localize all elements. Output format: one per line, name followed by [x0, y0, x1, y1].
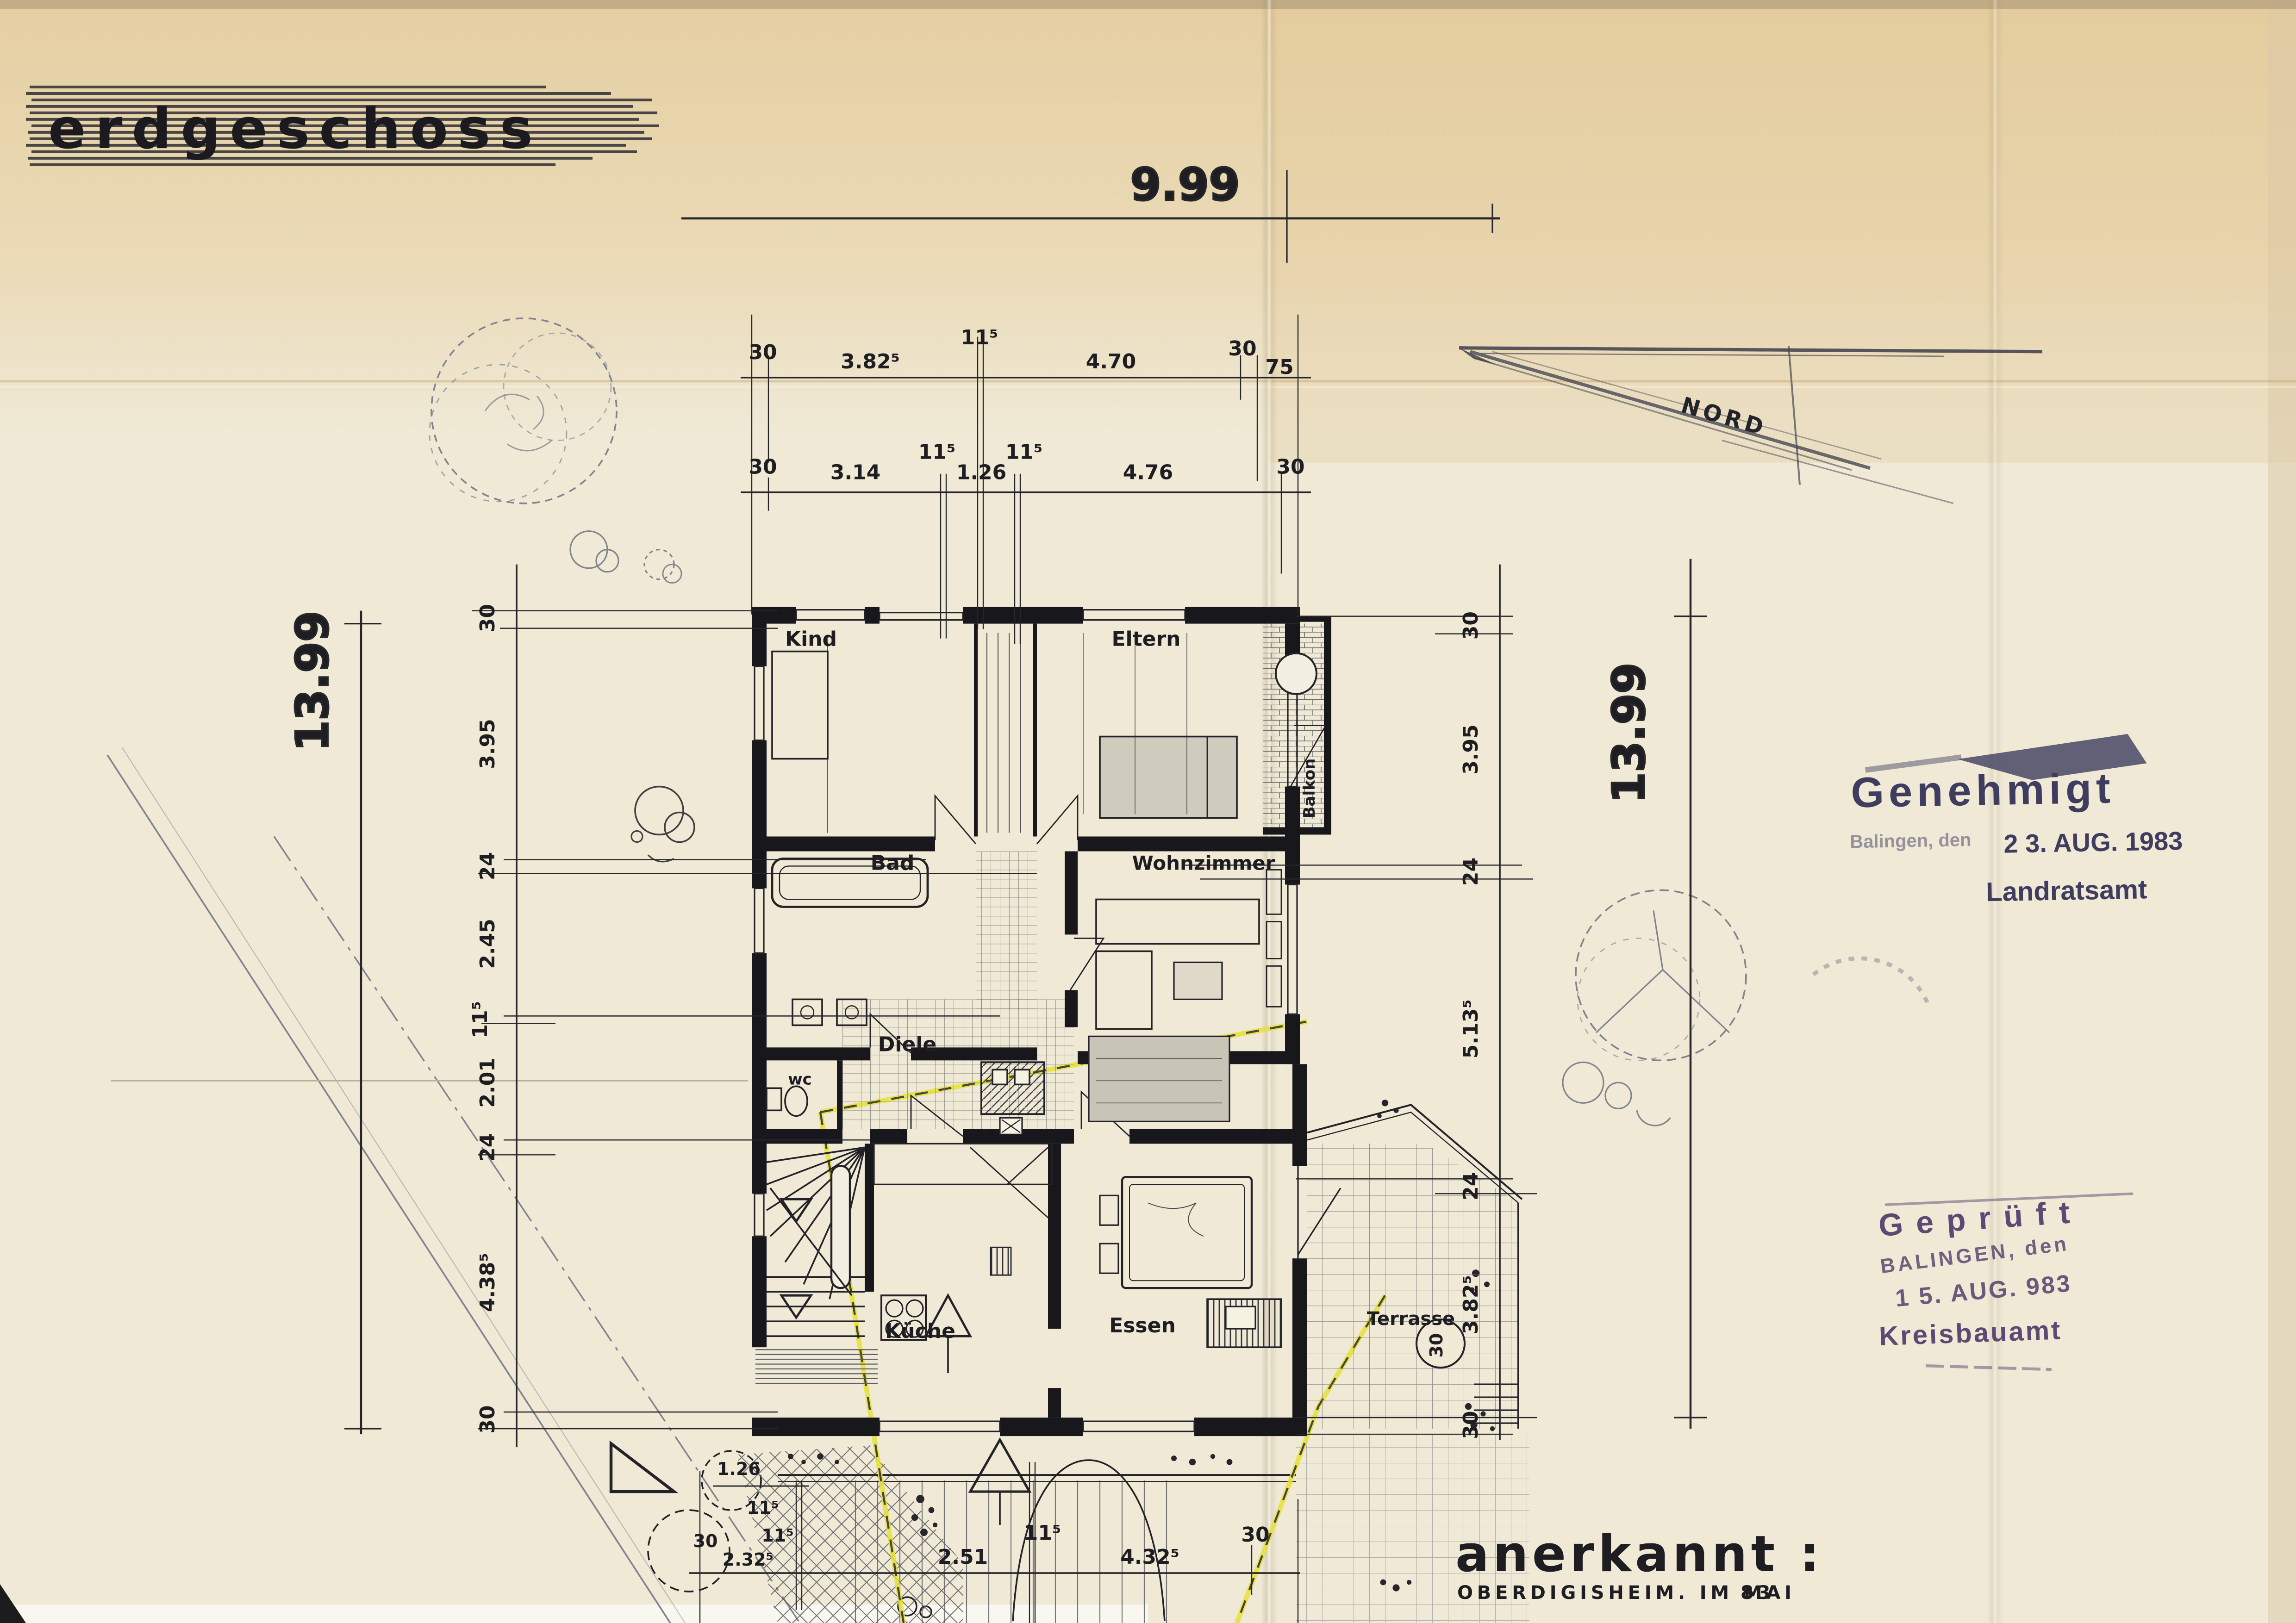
dim-label: 3.95	[476, 719, 499, 769]
dim-label: 2.01	[476, 1057, 499, 1108]
dim-label: 4.32⁵	[1120, 1545, 1179, 1569]
dim-label: 11⁵	[1024, 1521, 1061, 1545]
dim-label: 30	[749, 341, 777, 364]
dim-label: 3.82⁵	[1459, 1275, 1483, 1334]
dim-label: 4.76	[1123, 461, 1173, 485]
dim-label: 24	[476, 852, 499, 880]
stamp-approved-word: Genehmigt	[1851, 765, 2115, 816]
porch-decking	[755, 1347, 878, 1384]
room-label-terrasse: Terrasse	[1367, 1308, 1455, 1330]
dim-label: 13.99	[287, 611, 338, 752]
stamp-approved-place: Balingen, den	[1850, 830, 1972, 852]
dim-label: 11⁵	[1005, 441, 1042, 464]
dim-label: 9.99	[1130, 159, 1240, 211]
dim-label: 30	[476, 604, 499, 632]
dim-label: 1.26	[717, 1459, 761, 1479]
approval-word: anerkannt :	[1455, 1525, 1823, 1583]
page-title: erdgeschoss	[48, 97, 542, 162]
dim-label: 30	[1459, 1411, 1483, 1439]
dim-label: 24	[476, 1133, 499, 1162]
dim-label: 30	[1228, 337, 1256, 361]
dim-label: 11⁵	[761, 1525, 794, 1546]
room-label-eltern: Eltern	[1111, 628, 1180, 651]
approval-year: 83	[1741, 1582, 1774, 1604]
dim-label: 3.14	[830, 461, 881, 485]
dim-label: 24	[1459, 1172, 1483, 1200]
room-label-wohnzimmer: Wohnzimmer	[1132, 852, 1275, 874]
room-label-wc: wc	[788, 1070, 812, 1088]
hall-tiles	[976, 851, 1037, 1010]
floor-plan-scan: erdgeschoss	[0, 0, 2296, 1623]
stamp-approved-office: Landratsamt	[1986, 875, 2147, 907]
room-label-kind: Kind	[785, 628, 837, 651]
dim-label: 1.26	[956, 461, 1007, 485]
dim-label: 24	[1459, 858, 1483, 886]
dim-label: 30	[1426, 1333, 1447, 1358]
room-label-diele: Diele	[878, 1032, 936, 1056]
dim-label: 2.51	[938, 1545, 988, 1569]
dim-label: 11⁵	[468, 1001, 492, 1038]
dim-label: 2.45	[476, 919, 499, 969]
terrace-grid	[1307, 1144, 1518, 1429]
dim-label: 3.95	[1459, 724, 1483, 775]
dim-right-chain-labels: 30 3.95 24 5.13⁵ 24 3.82⁵ 30	[1459, 611, 1483, 1439]
dim-label: 11⁵	[918, 441, 955, 464]
dim-label: 13.99	[1603, 663, 1655, 803]
dim-label: 30	[1276, 455, 1304, 479]
dim-label: 11⁵	[747, 1498, 779, 1518]
room-label-essen: Essen	[1109, 1314, 1176, 1337]
dim-label: 11⁵	[961, 326, 998, 349]
room-label-bad: Bad	[871, 851, 915, 875]
dim-label: 30	[476, 1405, 499, 1434]
dim-label: 5.13⁵	[1459, 999, 1483, 1058]
dim-label: 30	[749, 455, 777, 479]
dim-label: 30	[1459, 611, 1483, 640]
dim-label: 4.38⁵	[476, 1253, 499, 1312]
room-label-balkon: Balkon	[1300, 759, 1319, 819]
approval-note: anerkannt : OBERDIGISHEIM. IM MAI 83	[1455, 1525, 1823, 1604]
stamp-approved-date: 2 3. AUG. 1983	[2003, 826, 2183, 858]
stamp-checked-office: Kreisbauamt	[1878, 1315, 2062, 1351]
room-label-kueche: Küche	[885, 1319, 955, 1343]
dim-label: 75	[1265, 355, 1293, 379]
title-block: erdgeschoss	[26, 87, 659, 165]
dim-label: 4.70	[1086, 350, 1136, 373]
dim-label: 2.32⁵	[723, 1549, 774, 1570]
dim-label: 30	[693, 1531, 718, 1551]
dim-label: 30	[1241, 1523, 1269, 1547]
dim-label: 3.82⁵	[841, 350, 900, 373]
